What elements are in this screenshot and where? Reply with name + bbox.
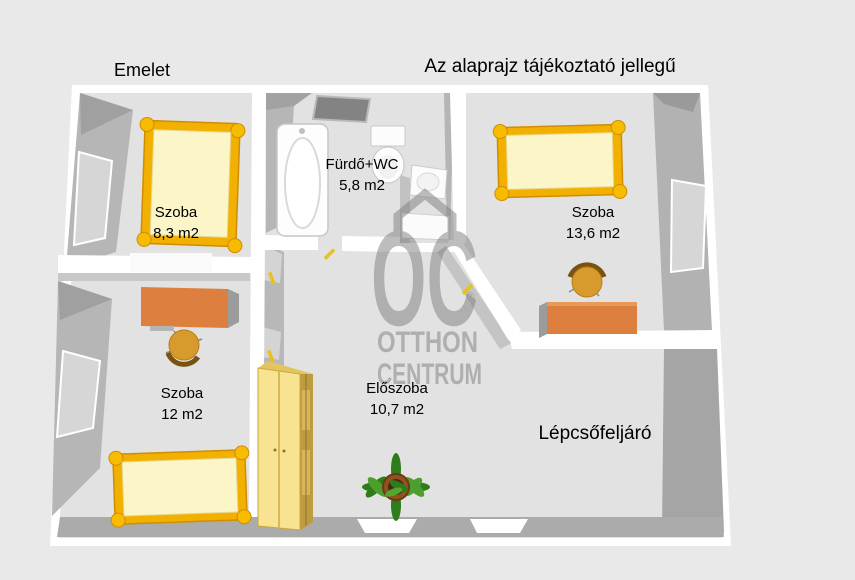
room-name: Fürdő+WC [302,154,422,175]
room-name: Előszoba [345,378,449,399]
watermark-registered: ® [466,291,474,303]
room12-window-icon [57,351,100,437]
watermark-logo: OC ® OTTHON CENTRUM [371,194,482,391]
room-name: Szoba [130,383,234,404]
room-area: 13,6 m2 [541,223,645,244]
bathroom-label: Fürdő+WC 5,8 m2 [302,154,422,196]
room136-label: Szoba 13,6 m2 [541,202,645,244]
hallway-label: Előszoba 10,7 m2 [345,378,449,420]
desk-icon [141,287,239,331]
room-name: Szoba [124,202,228,223]
floorplan-image: OC ® OTTHON CENTRUM Emelet Az alaprajz t… [0,0,855,580]
bed-icon [109,446,252,529]
bathroom-south-wall [264,235,318,250]
room83-label: Szoba 8,3 m2 [124,202,228,244]
floor-title: Emelet [97,60,187,81]
room-area: 8,3 m2 [124,223,228,244]
watermark-otthon: OTTHON [377,326,478,359]
room-name: Szoba [541,202,645,223]
room12-label: Szoba 12 m2 [130,383,234,425]
room-area: 10,7 m2 [345,399,449,420]
room-area: 12 m2 [130,404,234,425]
room83-window-icon [74,152,112,245]
floorplan-drawing: OC ® OTTHON CENTRUM [0,0,855,580]
desk-icon [539,302,637,338]
staircase-label: Lépcsőfeljáró [510,423,680,444]
wardrobe-icon [258,361,313,530]
bed-icon [493,120,627,201]
skylight-icon [313,96,370,122]
door-threshold-icon [357,519,417,533]
room83-door-sill [130,253,212,272]
door-threshold-icon [470,519,528,533]
hallway-west-wall [262,243,284,370]
disclaimer-text: Az alaprajz tájékoztató jellegű [405,56,695,77]
room136-window-icon [671,180,706,272]
room-area: 5,8 m2 [302,175,422,196]
wall-shadow [58,273,250,281]
